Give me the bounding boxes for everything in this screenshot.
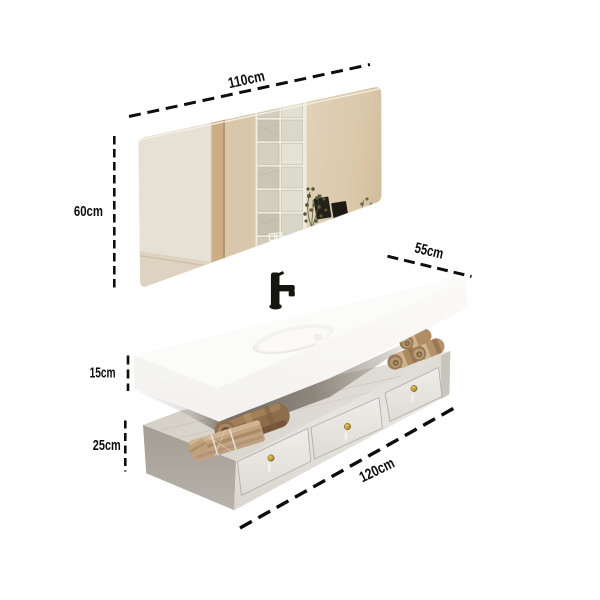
svg-text:15cm: 15cm bbox=[90, 365, 116, 382]
svg-text:25cm: 25cm bbox=[93, 437, 121, 454]
svg-text:60cm: 60cm bbox=[74, 203, 103, 220]
